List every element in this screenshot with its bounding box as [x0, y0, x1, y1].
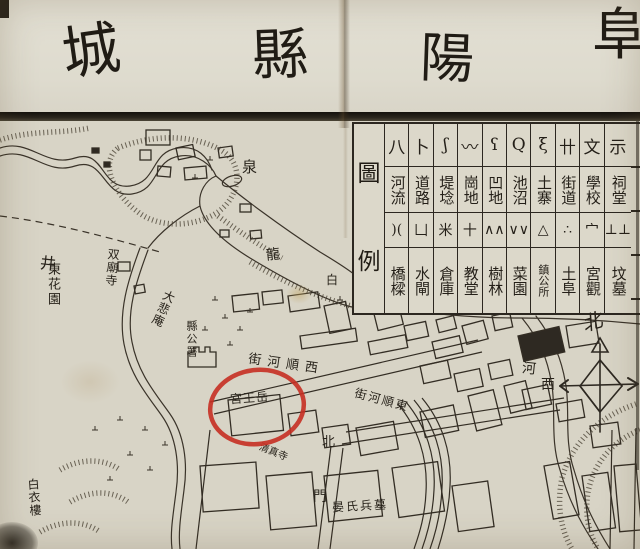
- map-label-yuewang-palace: 宮王岳: [230, 391, 270, 406]
- corner-mark: [0, 0, 9, 18]
- map-label-twin-temple: 双廟寺: [104, 248, 119, 288]
- map-label-dabei-nunnery: 大悲庵: [150, 288, 177, 329]
- map-label-spring: 泉: [242, 160, 257, 175]
- scanned-map-page: 城 縣 陽 阜 圖 例 八河流)(橋樑卜道路凵水閘ʃ堤埝米倉庫〰崗地十教堂ʕ凹地…: [0, 0, 640, 549]
- page-edge-shadow: [636, 118, 639, 470]
- title-char-fu: 阜: [592, 8, 640, 64]
- map-label-county-office: 縣公署: [186, 320, 197, 359]
- title-char-yang: 陽: [419, 31, 475, 87]
- map-label-mosque: 清真寺: [257, 443, 289, 464]
- title-divider-rule: [0, 112, 640, 121]
- map-title-band: 城 縣 陽 阜: [0, 0, 640, 112]
- title-char-xian: 縣: [251, 27, 309, 85]
- map-label-west-shunhe-street: 街河順西: [247, 353, 324, 376]
- title-char-cheng: 城: [58, 18, 124, 84]
- map-label-north-gate-gate: 門: [313, 490, 327, 504]
- map-label-yan-tombs: 晏氏兵墓: [332, 499, 389, 514]
- map-label-baiyi-tower: 白衣樓: [27, 478, 42, 518]
- map-label-white: 白: [326, 274, 338, 286]
- map-label-dragon: 龍: [265, 247, 280, 262]
- map-label-east-garden: 東花園: [46, 262, 59, 307]
- map-label-east-shunhe-street: 街河順東: [353, 387, 410, 413]
- compass-west-label: 西: [541, 378, 555, 392]
- map-label-river: 河: [521, 361, 536, 376]
- map-label-north-gate-north: 北: [322, 436, 335, 449]
- paper-fold-crease: [338, 0, 350, 128]
